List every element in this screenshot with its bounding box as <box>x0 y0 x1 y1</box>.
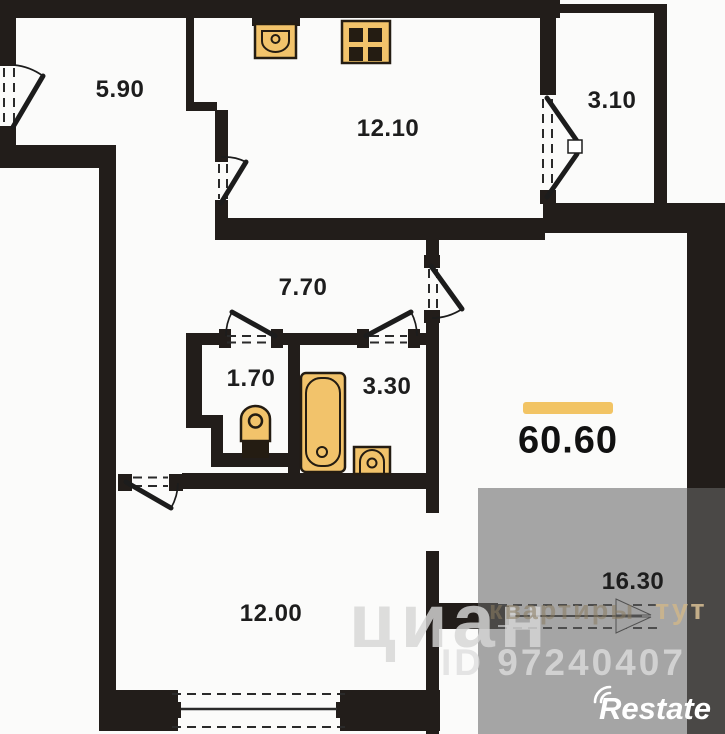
toilet-icon <box>241 406 270 458</box>
restate-logo: Restate <box>592 691 711 727</box>
room-label-bedroom: 12.00 <box>240 600 303 628</box>
floor-plan: циан квартиры тут ID 97240407 5.90 12.10… <box>0 0 725 734</box>
room-label-corridor: 7.70 <box>279 274 328 302</box>
restate-logo-text: Restate <box>599 691 711 727</box>
room-label-balcony: 3.10 <box>588 87 637 115</box>
stove-icon <box>342 21 390 63</box>
room-label-kitchen: 12.10 <box>357 115 420 143</box>
total-area-accent-bar <box>523 402 613 414</box>
watermark-slogan-word2: тут <box>655 596 707 625</box>
bathroom-sink-icon <box>354 447 390 474</box>
watermark-listing-id: ID 97240407 <box>441 644 686 681</box>
room-label-wc: 1.70 <box>227 365 276 393</box>
watermark-slogan-word1: квартиры <box>489 597 635 624</box>
balcony-door-handle <box>568 140 582 153</box>
total-area-label: 60.60 <box>518 420 618 463</box>
window <box>172 694 345 727</box>
bathtub-icon <box>301 373 345 472</box>
room-label-bathroom: 3.30 <box>363 373 412 401</box>
kitchen-sink-icon <box>255 24 296 58</box>
room-label-hall: 5.90 <box>96 76 145 104</box>
room-label-living-room: 16.30 <box>602 568 665 596</box>
